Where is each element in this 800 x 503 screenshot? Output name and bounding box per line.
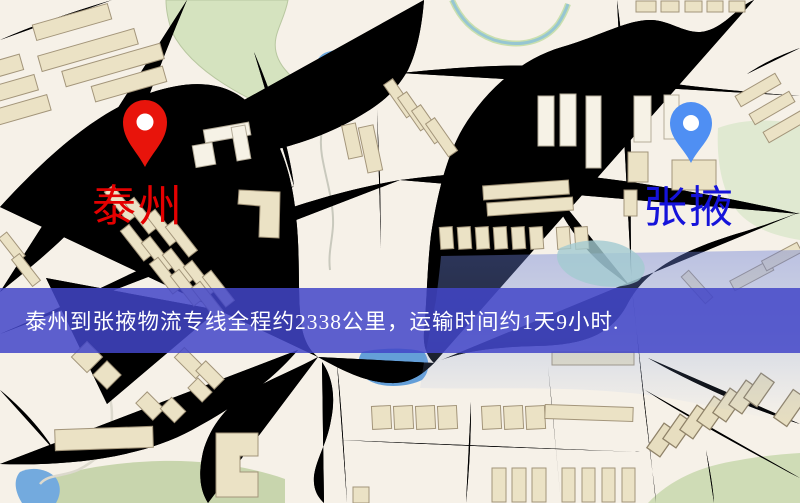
destination-pin-hole	[683, 115, 699, 131]
destination-city-label: 张掖	[643, 183, 735, 232]
logistics-route-map-image: 泰州到张掖物流专线全程约2338公里，运输时间约1天9小时. 泰州 张掖	[0, 0, 800, 503]
origin-city-label: 泰州	[92, 182, 184, 231]
banner-text: 泰州到张掖物流专线全程约2338公里，运输时间约1天9小时.	[25, 310, 619, 334]
info-banner: 泰州到张掖物流专线全程约2338公里，运输时间约1天9小时.	[0, 288, 800, 353]
route-map: 泰州到张掖物流专线全程约2338公里，运输时间约1天9小时. 泰州 张掖	[0, 0, 800, 503]
origin-pin-hole	[137, 114, 154, 131]
